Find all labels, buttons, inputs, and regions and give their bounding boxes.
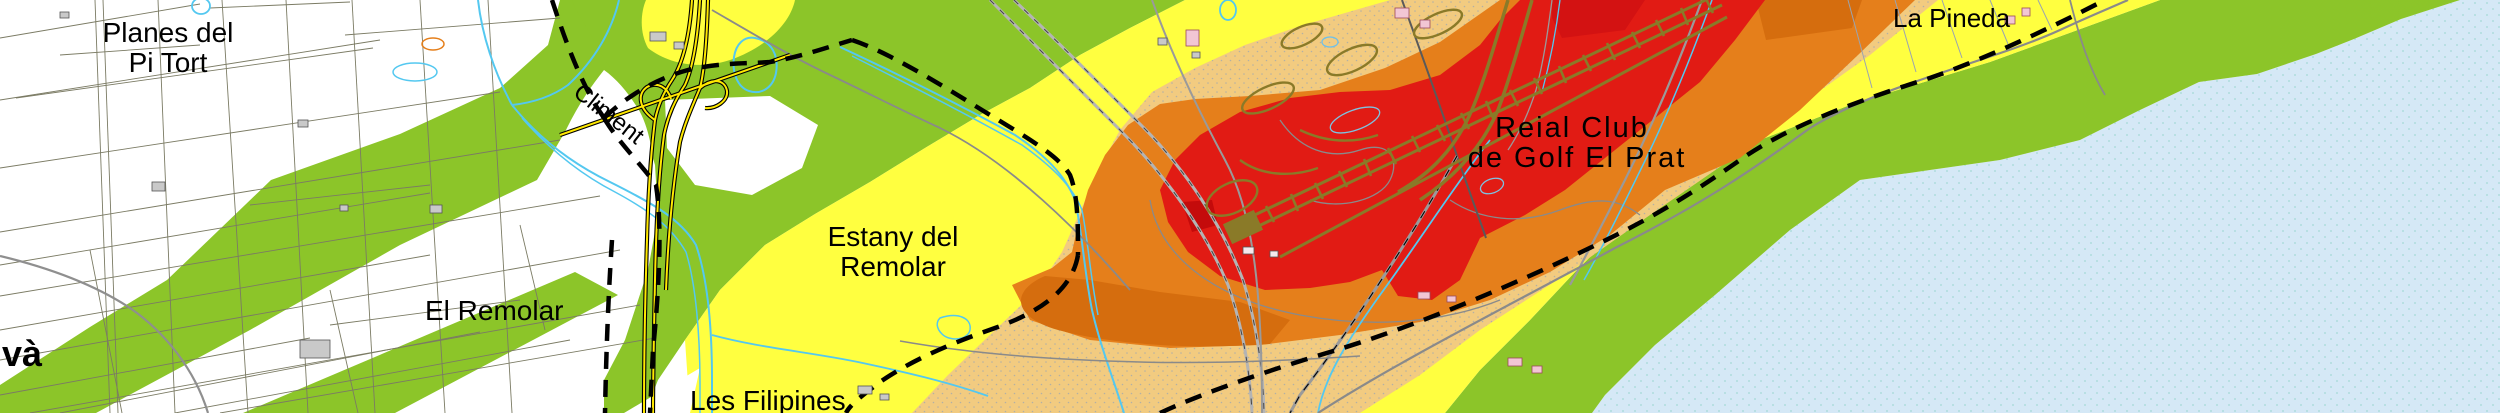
svg-text:de Golf El Prat: de Golf El Prat — [1468, 142, 1687, 174]
svg-text:Reial Club: Reial Club — [1495, 112, 1649, 144]
svg-text:La Pineda: La Pineda — [1893, 3, 2011, 33]
svg-text:Planes del: Planes del — [103, 17, 234, 48]
svg-text:Estany del: Estany del — [828, 221, 959, 252]
svg-text:Les Filipines: Les Filipines — [690, 385, 846, 413]
svg-text:El Remolar: El Remolar — [425, 295, 563, 326]
svg-text:và: và — [2, 333, 43, 374]
svg-text:Pi Tort: Pi Tort — [129, 47, 208, 78]
svg-text:Remolar: Remolar — [840, 251, 946, 282]
